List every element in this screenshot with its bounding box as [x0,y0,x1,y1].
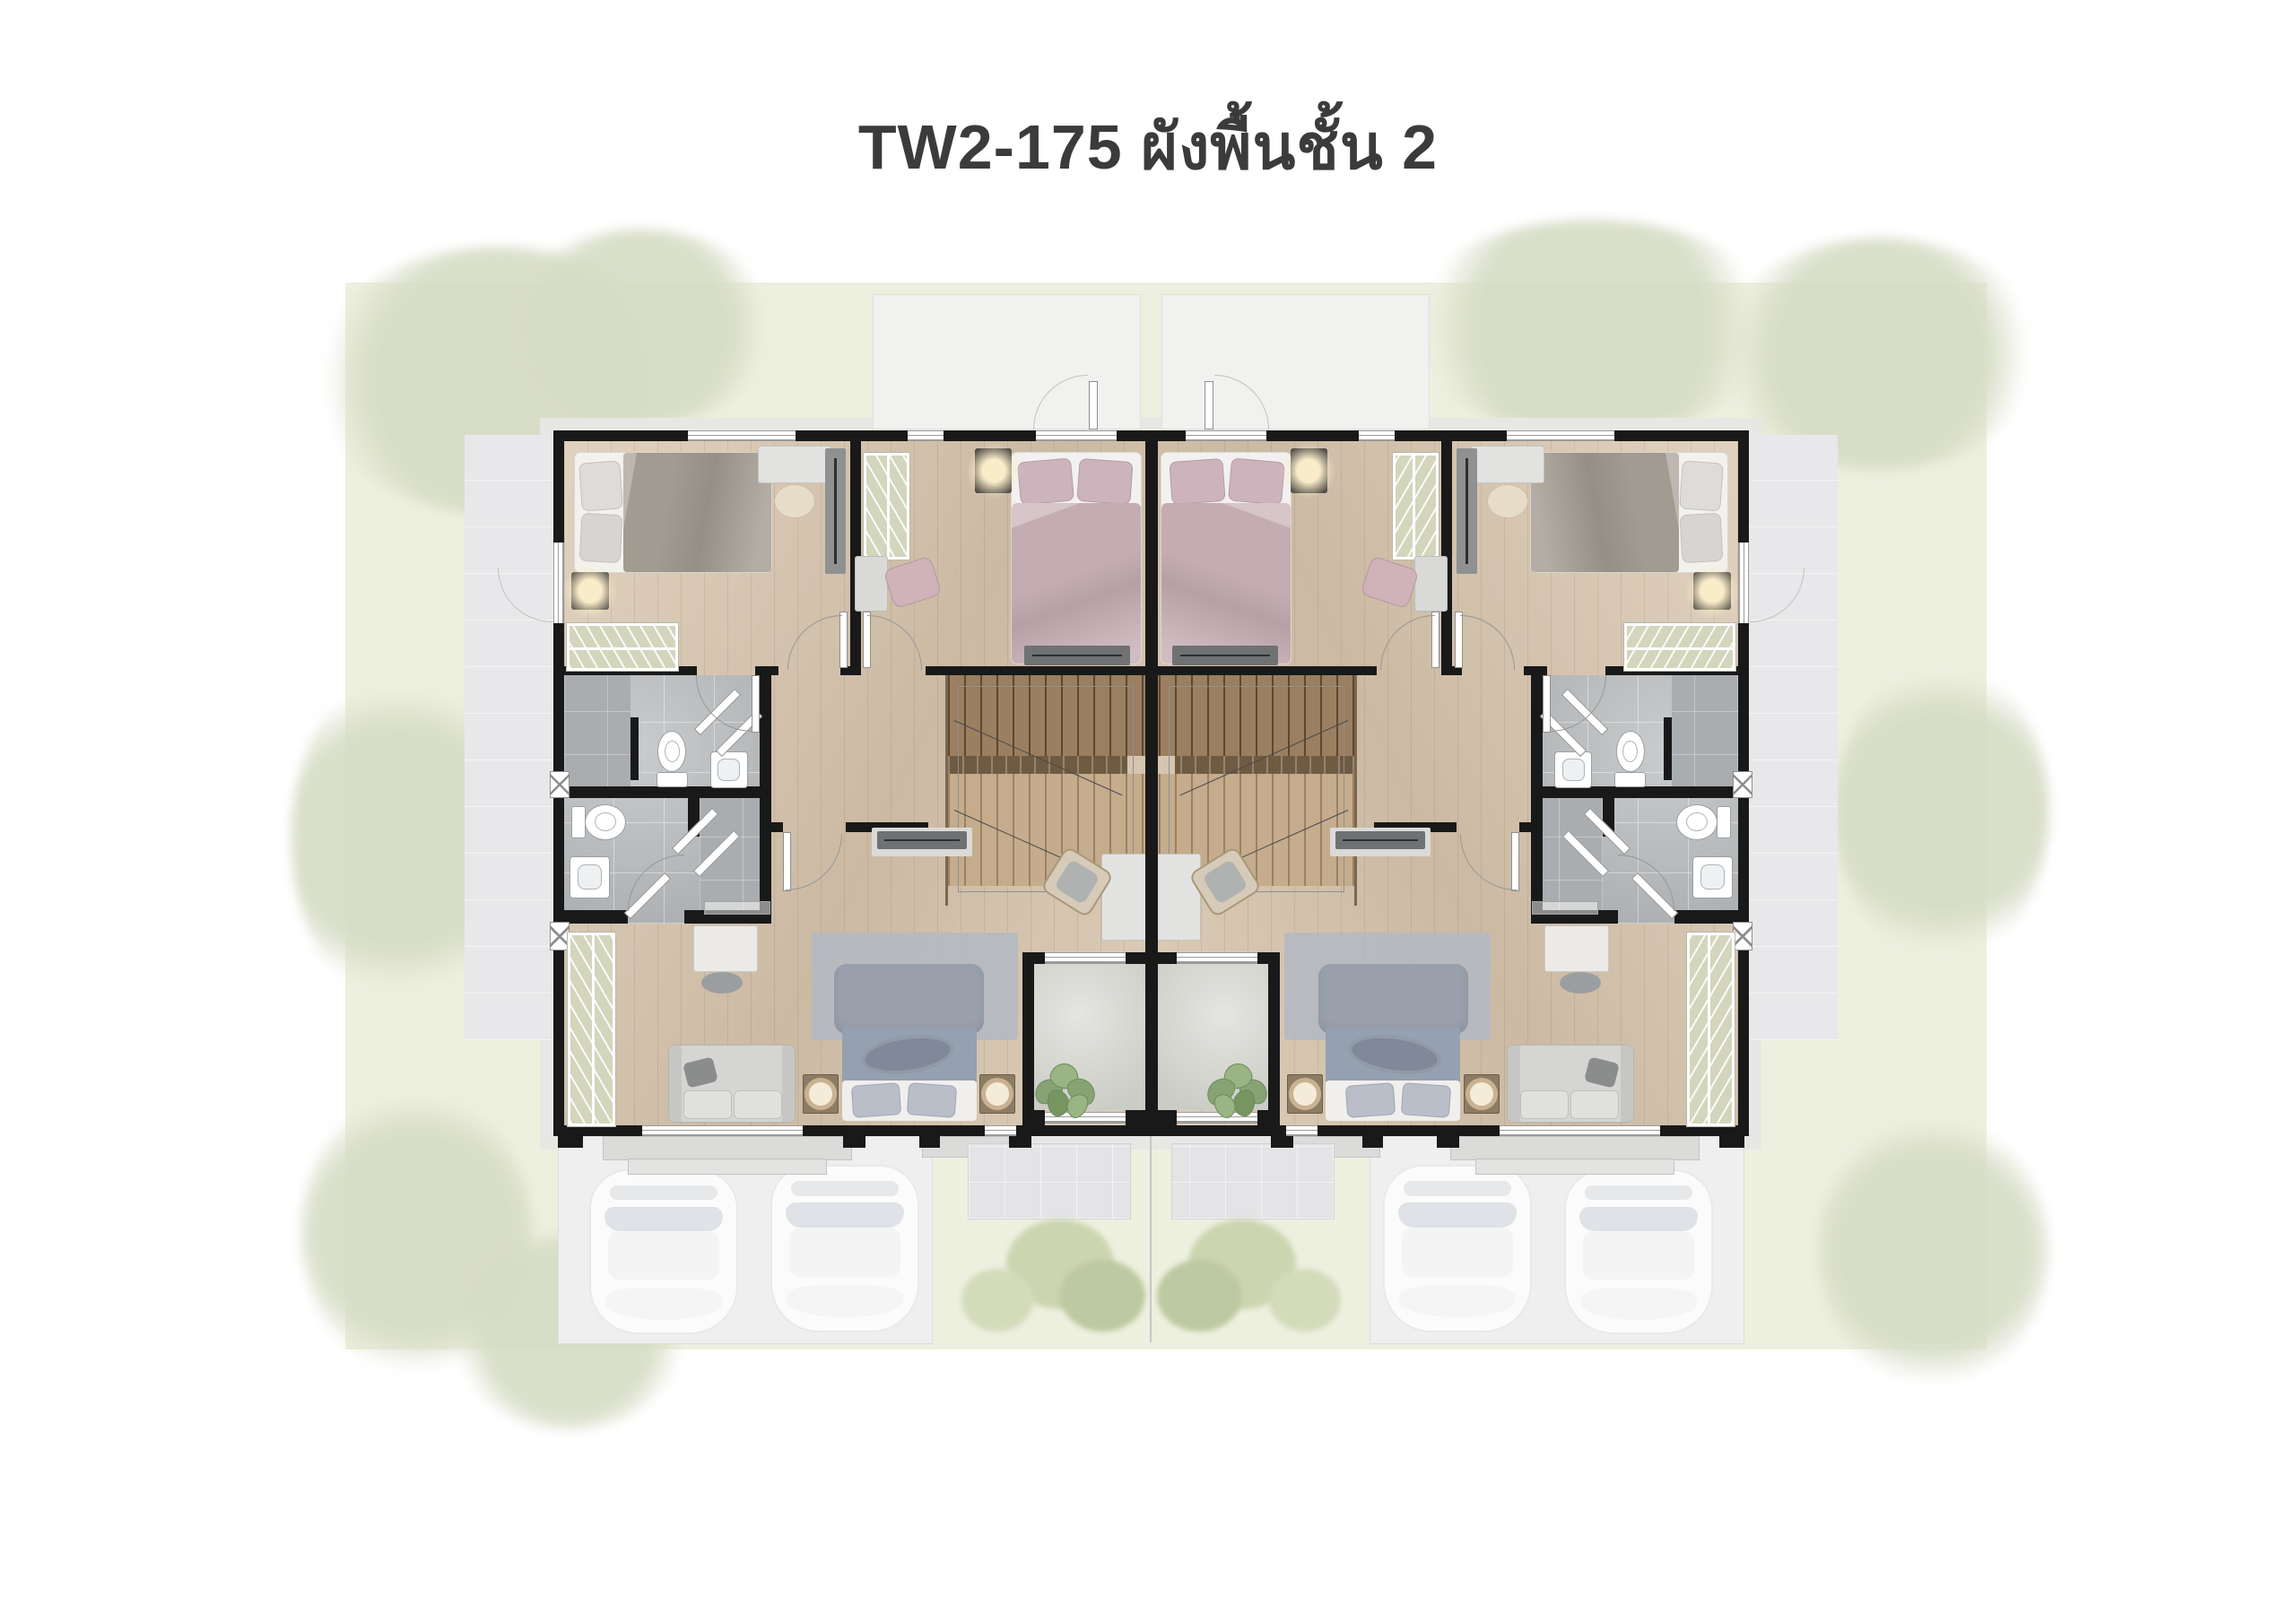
sink [1554,751,1592,788]
window-bottom-sliding [1500,1125,1660,1136]
bedroom3-closet [1393,453,1439,560]
ground-floor-door-leaf [1089,381,1098,430]
wall-bath-east [1531,673,1543,924]
wall-bath-east [760,673,771,924]
toilet [571,803,627,840]
bedroom2-bed [1531,453,1727,572]
sofa-back-cushion [1570,1090,1619,1119]
car-hood [787,1285,903,1318]
toilet-tank [1717,806,1731,838]
window-bottom [985,1125,1016,1136]
bed-pillow [1169,458,1225,505]
bed-pillow [1345,1082,1396,1118]
shower-stall-floor [1672,675,1738,798]
facade-pillar [1271,1136,1293,1148]
car-windshield [786,1202,905,1227]
bedroom2-wardrobe [567,623,678,671]
bathroom-door-leaf [752,675,760,733]
car-roof [789,1228,900,1277]
bed-pillow [1076,458,1133,505]
wall-bath-south [563,910,628,924]
chair-seat-cushion [1202,859,1248,906]
bed-headboard-cushion [1318,964,1468,1034]
bedroom3-closet [864,453,909,560]
toilet-bowl [1676,804,1718,840]
window-top [1186,430,1266,441]
car-windshield [1579,1207,1699,1231]
bedroom2-stool [1487,484,1528,518]
wall-balcony-south [1126,1110,1145,1125]
dressing-stool [1560,972,1601,994]
side-patio [1749,435,1838,1040]
car-rear-window [610,1185,717,1200]
shower-drain [1532,901,1598,915]
car-suv [772,1167,918,1331]
car-hood [1399,1285,1516,1318]
sink [710,751,748,788]
wall-master-north [771,822,783,832]
bed-pillow [1017,457,1074,505]
shrub-icon [1269,1269,1341,1332]
chair-seat-cushion [1054,859,1100,906]
window-top [688,430,796,441]
page-title: TW2-175 ผังพื้นชั้น 2 [0,97,2296,196]
bedroom2-tv-console [825,448,846,574]
toilet-bowl [657,731,686,772]
stair-stringer [1354,675,1357,906]
lot-divider-line [1150,1136,1152,1342]
bed-pillow [578,460,623,511]
car-suv [1385,1167,1530,1331]
unit-left [553,430,1151,1136]
toilet [1614,731,1648,786]
wall-balcony-north [1022,952,1045,964]
dressing-stool [701,972,743,994]
master-tv-console [1335,831,1425,849]
bedroom2-stool [774,484,815,518]
sofa-pillow [1584,1056,1620,1088]
facade-pillar [1009,1136,1031,1148]
entry-porch-step [1475,1159,1674,1175]
facade-pillar [1437,1136,1459,1148]
balcony-door-window [1177,952,1257,964]
wall-balcony-north [1257,952,1280,964]
master-wardrobe [1687,933,1735,1126]
window-bottom-sliding [642,1125,803,1136]
facade-pillar [843,1136,865,1148]
stair-stringer [945,675,948,906]
bedroom3-tv-console [1024,646,1130,665]
sofa-back-cushion [1520,1090,1569,1119]
wall-shower-divider [631,717,639,780]
master-bed [834,964,984,1121]
toilet [655,731,688,786]
bed-headboard-cushion [834,964,984,1034]
car-rear-window [1585,1185,1692,1200]
bed-duvet [1012,503,1141,664]
car-hood [1580,1288,1697,1320]
wall-corridor [1157,666,1377,675]
window-top [1507,430,1614,441]
car-rear-window [791,1181,899,1195]
front-terrace-pad [1161,294,1430,430]
ground-patio-mat [1171,1143,1335,1219]
vanity-sink [1692,856,1733,898]
bath-vent-window [1733,922,1752,950]
bedroom3-bed [1161,453,1291,664]
dressing-table [1544,925,1609,972]
sofa-back-cushion [683,1090,732,1119]
bed-pillow [1680,513,1724,563]
car-sedan [591,1171,736,1332]
bed-pillow [1679,460,1724,511]
sofa-armrest [1621,1046,1633,1122]
party-wall [1145,430,1158,1136]
master-tv-console [877,831,967,849]
front-terrace-pad [873,294,1141,430]
window-top [1036,430,1117,441]
wall-shower-divider [1664,717,1672,780]
car-roof [1583,1231,1693,1280]
bedroom2-desk [1471,446,1544,483]
toilet-tank [571,806,586,838]
shower-drain [704,901,770,915]
entry-porch-step [628,1159,827,1175]
bath-vent-window [550,771,570,798]
facade-pillar [1362,1136,1383,1148]
bedside-lamp [571,572,609,610]
balcony-plant [1032,1056,1097,1117]
study-desk [1155,854,1201,941]
shrub-icon [1060,1260,1145,1332]
window-top [908,430,944,441]
toilet-bowl [1616,731,1645,772]
window-bottom [1286,1125,1318,1136]
bed-duvet [1161,503,1291,664]
window-top [1359,430,1395,441]
facade-pillar [558,1136,583,1148]
side-patio [465,435,553,1040]
bed-pillow [579,513,623,563]
bedside-lamp [1291,448,1327,493]
bedroom2-wardrobe [1624,623,1735,671]
wall-balcony-north [1126,952,1145,964]
master-wardrobe [568,933,615,1126]
wall-master-north [1519,822,1531,832]
toilet-tank [1614,772,1646,787]
car-windshield [604,1207,724,1231]
wall-balcony-south [1157,1110,1177,1125]
sofa-armrest [669,1046,682,1122]
bed-pillow [851,1082,901,1118]
unit-right [1152,430,1749,1136]
master-nightstand [1464,1074,1500,1114]
bath-vent-window [1733,771,1752,798]
study-desk [1101,854,1147,941]
bedroom3-bed [1012,453,1141,664]
bedroom2-desk [758,446,831,483]
master-nightstand [1287,1074,1323,1114]
shower-stall-floor [564,675,631,798]
toilet-bowl [585,804,626,840]
facade-pillar [919,1136,940,1148]
car-roof [608,1231,718,1280]
toilet [1675,803,1731,840]
ground-floor-door-leaf [1205,381,1213,430]
bed-pillow [1228,457,1285,505]
sofa-back-cushion [734,1090,782,1119]
vanity-sink [570,856,610,898]
bed-duvet [1531,453,1679,572]
bath-vent-window [550,922,570,950]
bedroom3-side-table [1414,556,1448,612]
bed-pillow [907,1082,957,1118]
balcony-plant [1205,1056,1270,1117]
sofa-pillow [683,1056,718,1088]
shrub-icon [961,1269,1033,1332]
master-sofa [668,1045,796,1123]
balcony-door-window [1045,952,1126,964]
bedside-lamp [1693,572,1731,610]
sofa-armrest [782,1046,795,1122]
floor-plan-canvas: TW2-175 ผังพื้นชั้น 2 [0,0,2296,1623]
master-sofa [1507,1045,1634,1123]
sofa-armrest [1508,1046,1520,1122]
master-bed [1318,964,1468,1121]
bed-duvet [623,453,771,572]
bedroom3-side-table [855,556,888,612]
wall-bath-south [1674,910,1739,924]
toilet-tank [657,772,688,787]
wall-corridor [926,666,1145,675]
dressing-table [693,925,758,972]
bedroom3-tv-console [1172,646,1278,665]
wall-balcony-north [1157,952,1177,964]
car-sedan [1566,1171,1711,1332]
car-roof [1402,1228,1512,1277]
car-hood [605,1288,722,1320]
ground-patio-mat [968,1143,1131,1219]
master-nightstand [979,1074,1015,1114]
shrub-icon [1157,1260,1242,1332]
car-rear-window [1404,1181,1511,1195]
bed-pillow [1401,1082,1451,1118]
bedside-lamp [975,448,1012,493]
entry-porch-step [1450,1136,1700,1160]
master-nightstand [803,1074,839,1114]
facade-pillar [1719,1136,1744,1148]
car-windshield [1398,1202,1518,1227]
entry-porch-step [603,1136,852,1160]
bedroom2-bed [575,453,771,572]
bedroom2-tv-console [1457,448,1477,574]
